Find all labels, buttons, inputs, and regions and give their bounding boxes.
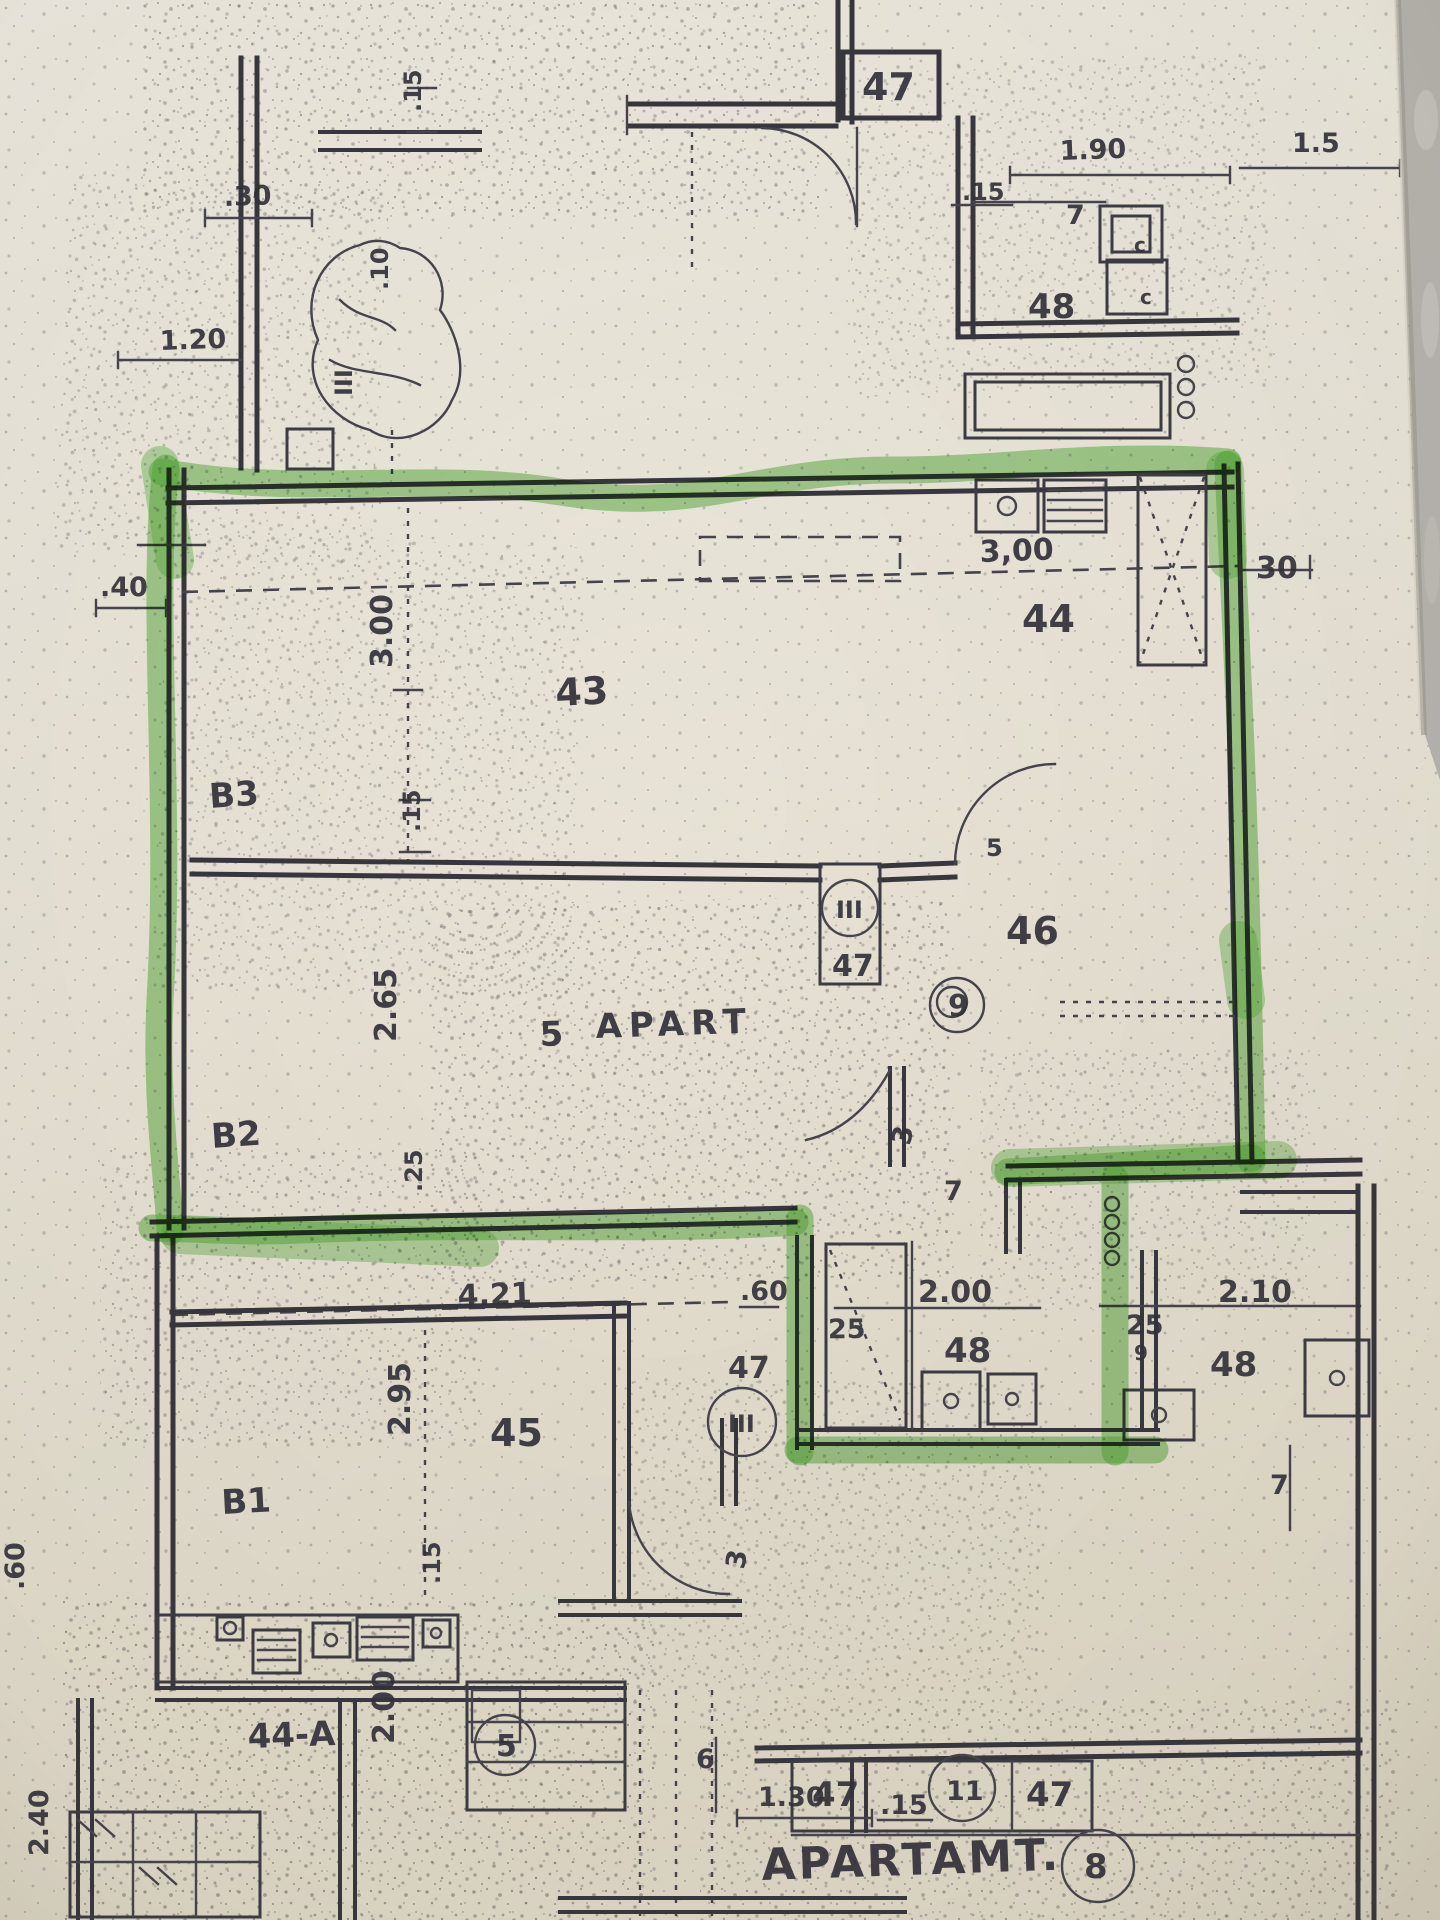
photo-vignette [0, 0, 1440, 1920]
photographed-floorplan: .30 1.20 .15 .10 III 47 .15 7 1.90 1.5 4… [0, 0, 1440, 1920]
floorplan-photo: .30 1.20 .15 .10 III 47 .15 7 1.90 1.5 4… [0, 0, 1440, 1920]
